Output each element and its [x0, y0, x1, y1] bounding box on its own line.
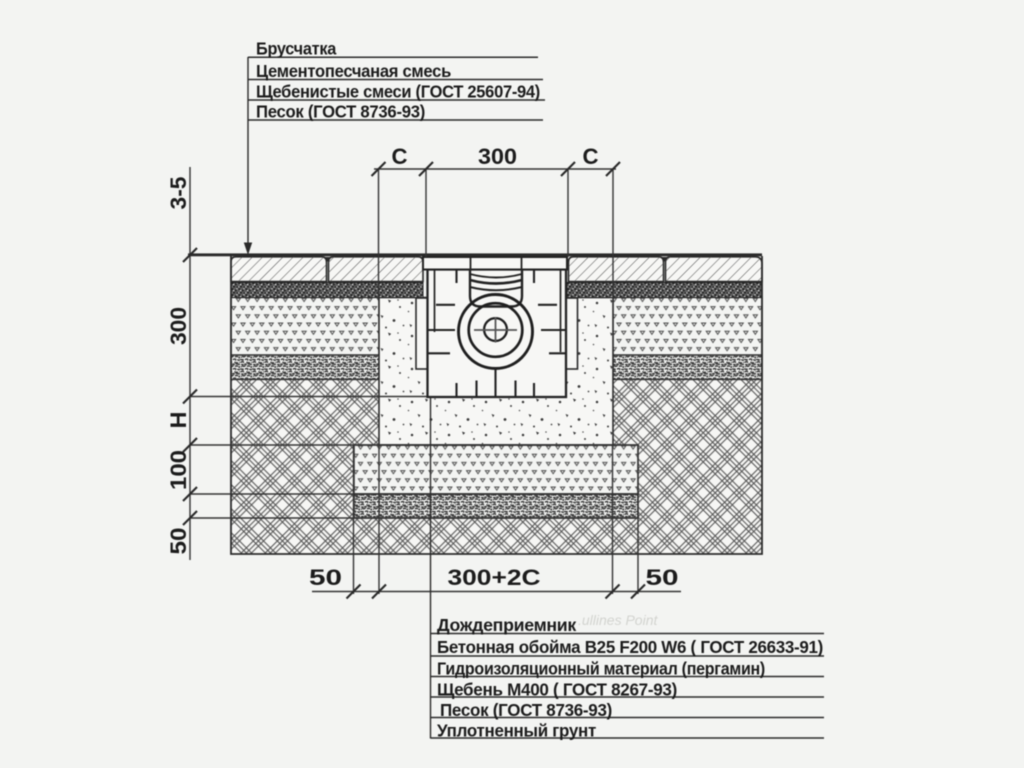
- svg-text:Щебень М400 ( ГОСТ 8267-93): Щебень М400 ( ГОСТ 8267-93): [437, 680, 677, 700]
- svg-text:Уплотненный грунт: Уплотненный грунт: [437, 721, 597, 741]
- svg-text:Бетонная обойма В25 F200 W6 (: Бетонная обойма В25 F200 W6 ( ГОСТ 26633…: [437, 637, 823, 657]
- svg-text:C: C: [583, 144, 599, 169]
- svg-text:C: C: [392, 144, 408, 169]
- svg-text:Цементопесчаная смесь: Цементопесчаная смесь: [256, 61, 452, 81]
- svg-text:Песок (ГОСТ 8736-93): Песок (ГОСТ 8736-93): [440, 700, 612, 720]
- svg-text:100: 100: [166, 450, 191, 490]
- svg-text:Гидроизоляционный материал (пе: Гидроизоляционный материал (пергамин): [437, 659, 765, 679]
- svg-text:.ullines Point: .ullines Point: [578, 612, 658, 628]
- svg-text:Брусчатка: Брусчатка: [256, 39, 337, 59]
- svg-text:300+2C: 300+2C: [448, 565, 541, 590]
- svg-text:Песок (ГОСТ 8736-93): Песок (ГОСТ 8736-93): [256, 102, 425, 122]
- svg-text:50: 50: [646, 565, 679, 590]
- svg-text:3-5: 3-5: [166, 177, 191, 210]
- svg-text:300: 300: [478, 144, 517, 169]
- svg-text:Дождеприемник: Дождеприемник: [437, 615, 577, 635]
- svg-text:50: 50: [309, 565, 342, 590]
- svg-text:300: 300: [166, 307, 191, 345]
- svg-text:H: H: [166, 412, 191, 429]
- svg-text:Щебенистые смеси (ГОСТ 25607-9: Щебенистые смеси (ГОСТ 25607-94): [256, 82, 540, 102]
- svg-text:50: 50: [166, 528, 191, 555]
